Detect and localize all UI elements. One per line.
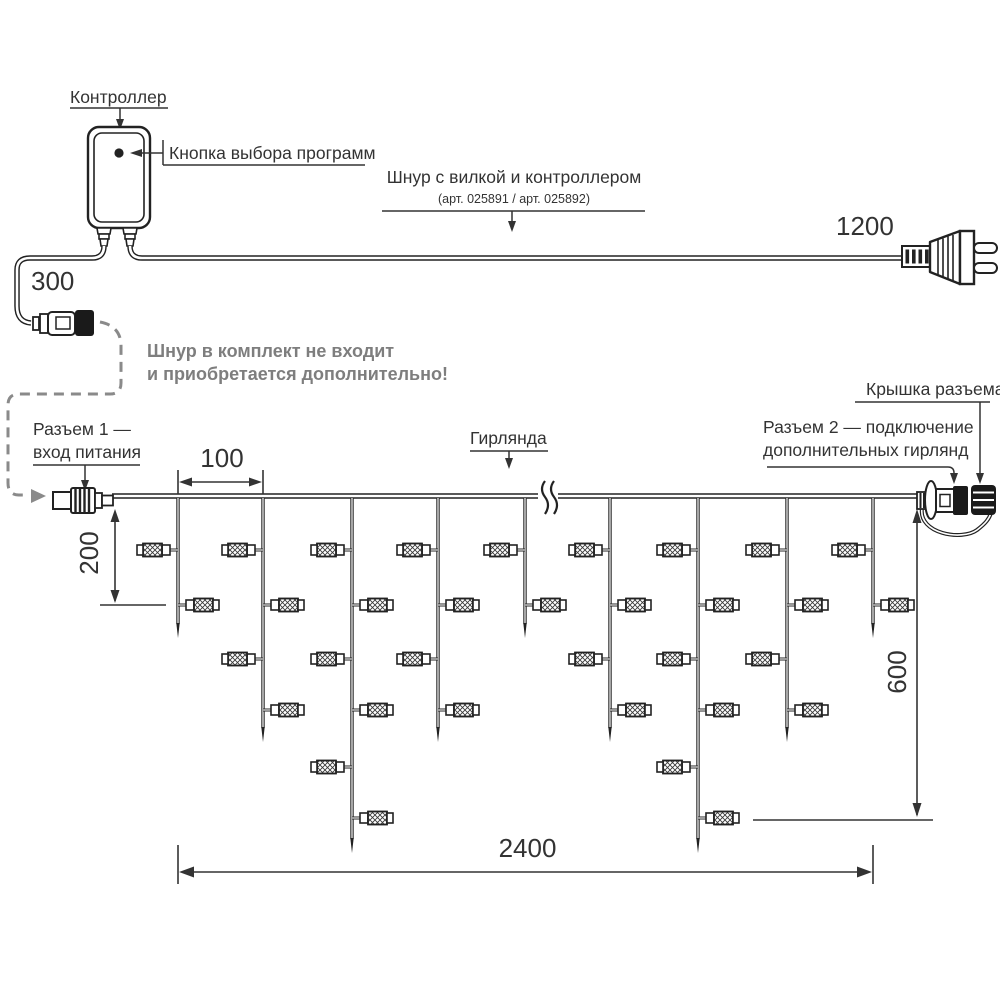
lamp: [746, 544, 787, 557]
lamp: [311, 544, 352, 557]
dim-200-arrow-down: [111, 590, 120, 603]
dim-200: [100, 513, 166, 605]
tail-cord-connector: [33, 310, 94, 336]
lamp: [657, 544, 698, 557]
dim-100-arrow-right: [249, 478, 262, 487]
cord-label: Шнур с вилкой и контроллером (арт. 02589…: [383, 166, 645, 207]
dim-300-value: 300: [31, 266, 74, 297]
connector-cap-label: Крышка разъема: [866, 378, 1000, 401]
lamp: [657, 761, 698, 774]
cord-label-arrow: [508, 221, 516, 232]
lamp: [397, 544, 438, 557]
lamp: [569, 544, 610, 557]
lamp: [438, 599, 479, 612]
garland-drop: [222, 498, 304, 742]
garland-drop: [137, 498, 219, 638]
lamp: [352, 599, 393, 612]
lamp: [438, 704, 479, 717]
lamp: [397, 653, 438, 666]
lamp: [263, 599, 304, 612]
garland-label-arrow: [505, 458, 513, 469]
lamp: [222, 653, 263, 666]
diagram-canvas: Контроллер Кнопка выбора программ Шнур с…: [0, 0, 1000, 1000]
controller-label: Контроллер: [70, 86, 167, 109]
lamp: [525, 599, 566, 612]
lamp: [352, 704, 393, 717]
connector-cap-part: [971, 485, 996, 515]
dim-1200-value: 1200: [836, 211, 894, 242]
lamp: [610, 704, 651, 717]
lamp: [311, 761, 352, 774]
connector1-line2: вход питания: [33, 441, 141, 464]
program-button: [114, 148, 123, 157]
dim-100-value: 100: [187, 443, 257, 474]
garland-drop: [397, 498, 479, 742]
garland-drop: [311, 498, 393, 853]
lamp: [787, 599, 828, 612]
lamp: [263, 704, 304, 717]
connector1-line1: Разъем 1 —: [33, 418, 141, 441]
garland-drop: [746, 498, 828, 742]
lamp: [222, 544, 263, 557]
connector-2: [917, 481, 996, 535]
dashed-route: [8, 322, 121, 495]
lamp: [873, 599, 914, 612]
lamp: [698, 704, 739, 717]
dim-2400-arrow-left: [179, 867, 194, 878]
garland-drop: [657, 498, 739, 853]
dim-2400-value: 2400: [480, 833, 575, 864]
not-included-note: Шнур в комплект не входит и приобретаетс…: [147, 340, 448, 387]
connector-1: [53, 488, 113, 513]
connector2-label: Разъем 2 — подключение дополнительных ги…: [763, 416, 958, 462]
dim-100-arrow-left: [179, 478, 192, 487]
connector1-label: Разъем 1 — вход питания: [33, 418, 141, 464]
connector2-leader: [767, 467, 954, 476]
controller-stubs: [97, 228, 137, 246]
note-line1: Шнур в комплект не входит: [147, 340, 448, 363]
dim-2400-arrow-right: [857, 867, 872, 878]
lamp: [746, 653, 787, 666]
connector2-arrow: [950, 473, 958, 484]
garland-drops: [137, 498, 914, 853]
dim-200-value: 200: [76, 518, 102, 588]
lamp: [137, 544, 178, 557]
lamp: [657, 653, 698, 666]
program-button-label: Кнопка выбора программ: [169, 142, 376, 165]
wire-break: [538, 481, 558, 514]
connector2-line2: дополнительных гирлянд: [763, 439, 958, 462]
garland-drop: [484, 498, 566, 638]
cord-label-title: Шнур с вилкой и контроллером: [383, 166, 645, 189]
dim-600-arrow-down: [913, 803, 922, 817]
note-line2: и приобретается дополнительно!: [147, 363, 448, 386]
connector2-line1: Разъем 2 — подключение: [763, 416, 958, 439]
garland-label: Гирлянда: [470, 427, 547, 450]
lamp: [352, 812, 393, 825]
lamp: [569, 653, 610, 666]
lamp: [178, 599, 219, 612]
controller-box: [88, 127, 150, 228]
lamp: [484, 544, 525, 557]
dim-600-value: 600: [884, 637, 910, 707]
garland-drop: [569, 498, 651, 742]
power-cord: [130, 246, 903, 258]
lamp: [610, 599, 651, 612]
cord-label-articles: (арт. 025891 / арт. 025892): [383, 191, 645, 207]
lamp: [698, 812, 739, 825]
garland-drop: [832, 498, 914, 638]
power-plug: [902, 231, 997, 284]
lamp: [787, 704, 828, 717]
dim-200-arrow-up: [111, 509, 120, 522]
lamp: [698, 599, 739, 612]
cap-arrow: [976, 473, 984, 484]
lamp: [832, 544, 873, 557]
lamp: [311, 653, 352, 666]
dashed-route-arrow: [31, 489, 46, 503]
